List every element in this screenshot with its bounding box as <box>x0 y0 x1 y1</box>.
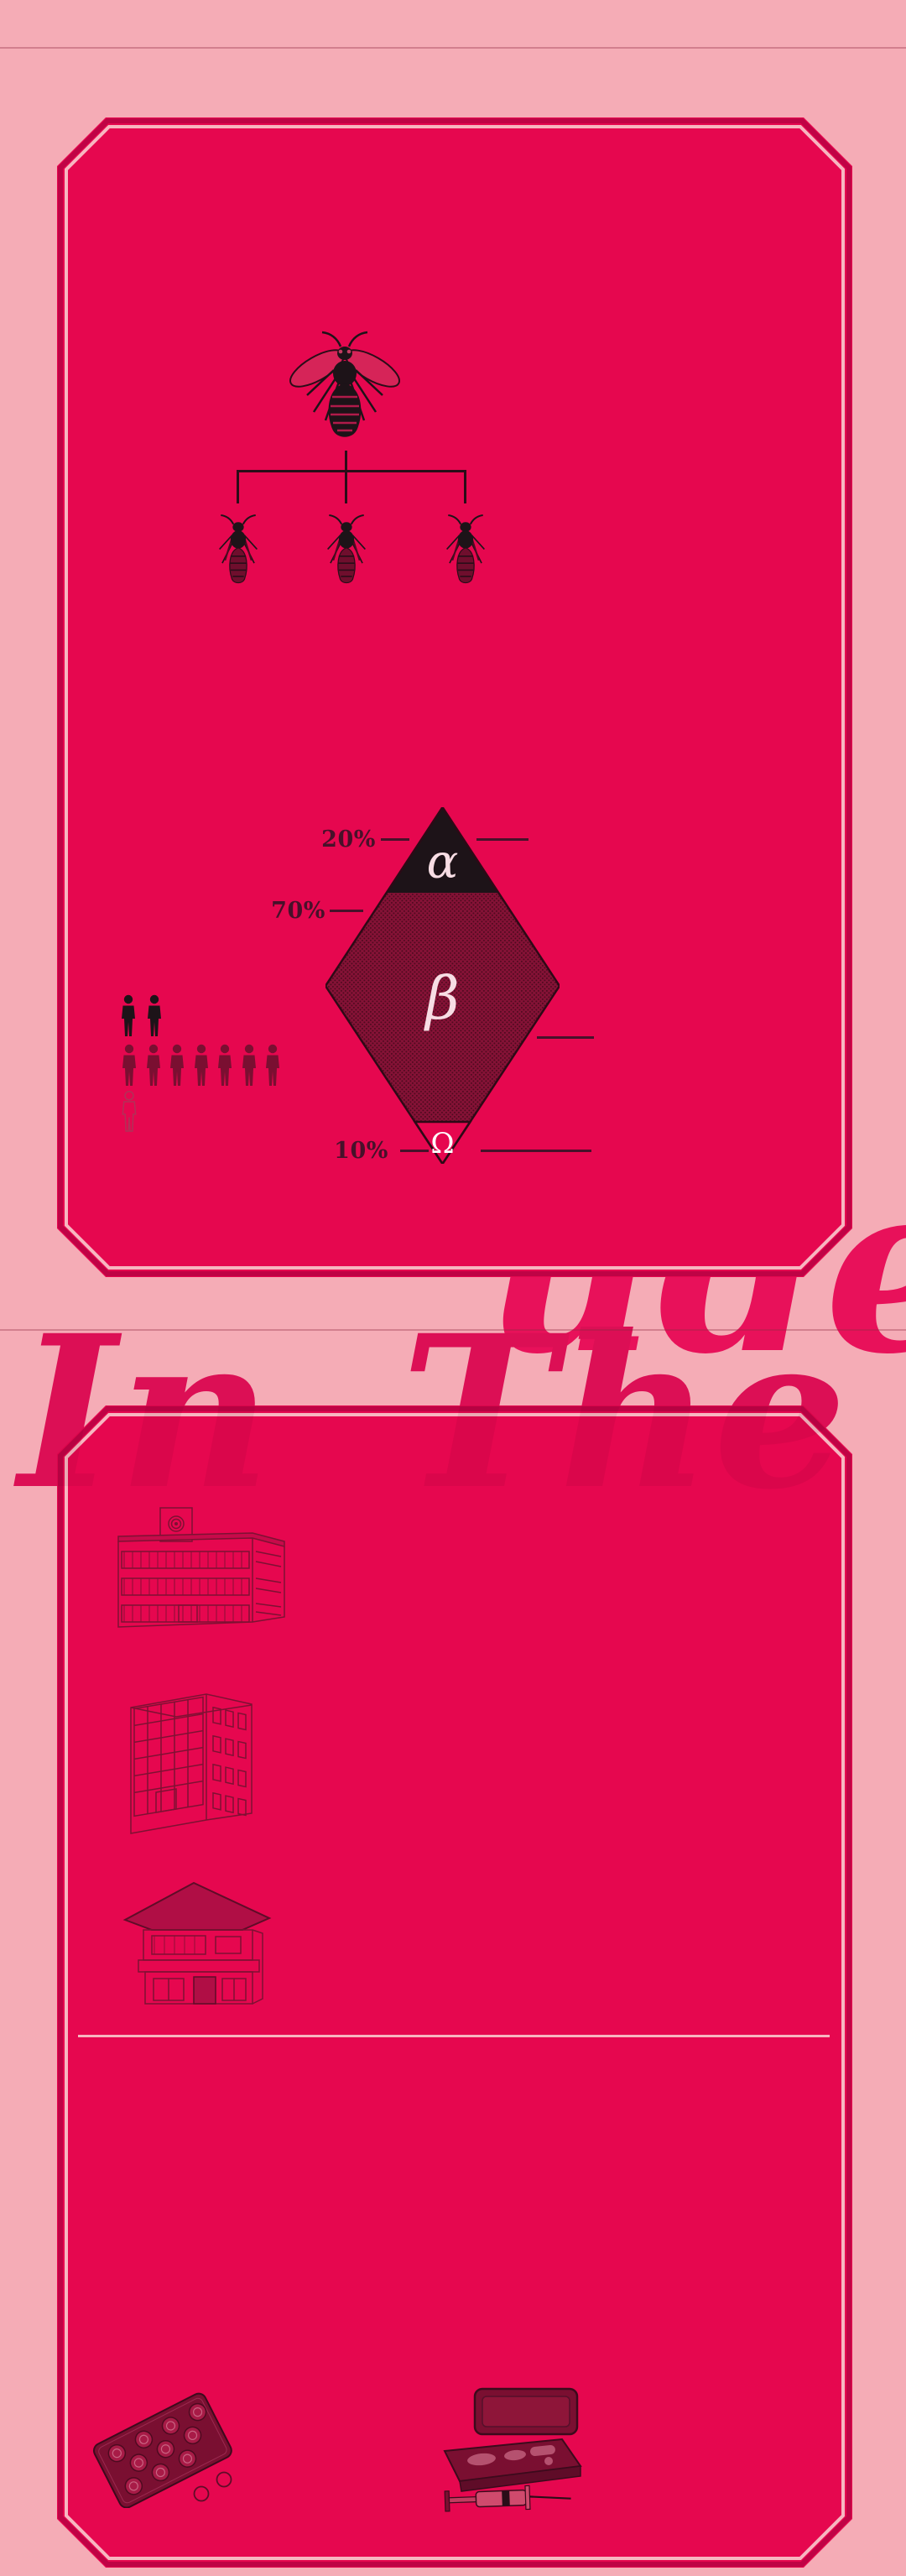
leader-line-omega-left <box>400 1150 429 1152</box>
leader-line-omega-right <box>481 1150 591 1152</box>
person-icon-maroon <box>263 1044 282 1087</box>
person-icon-outline <box>120 1091 138 1133</box>
leader-line-beta-left <box>330 910 363 912</box>
beta-label: β <box>423 964 459 1033</box>
leader-line-alpha-left <box>381 838 409 841</box>
page-fold-line-top <box>0 47 906 49</box>
infographic-spread: { "colors": { "background": "#f5acb6", "… <box>0 0 906 2576</box>
omega-label: Ω <box>430 1127 454 1160</box>
leader-line-beta-right <box>537 1036 594 1039</box>
page-fold-line-middle <box>0 1329 906 1331</box>
value-label-beta: 70% <box>263 898 325 925</box>
person-icon-black <box>145 993 164 1039</box>
person-icon-maroon <box>144 1044 163 1087</box>
wasp-icon <box>214 505 263 594</box>
queen-wasp-icon <box>282 330 408 449</box>
wasp-icon <box>322 505 371 594</box>
loose-pill-icon <box>217 2473 232 2487</box>
pill-blister-pack-icon <box>91 2392 240 2508</box>
section-divider <box>78 2035 830 2037</box>
tree-line-branch-1 <box>237 470 239 503</box>
person-icon-maroon <box>240 1044 258 1087</box>
syringe-case-icon <box>441 2387 586 2521</box>
diamond-distribution-chart: α β Ω <box>325 807 560 1164</box>
loose-pill-icon <box>195 2487 209 2501</box>
person-icon-maroon <box>216 1044 234 1087</box>
two-story-house-icon <box>120 1876 275 2011</box>
school-clock-tower-building-icon <box>112 1503 291 1634</box>
tree-line-branch-3 <box>464 470 466 503</box>
top-panel: α β Ω 20% 70% 10% <box>57 117 852 1277</box>
bottom-panel <box>57 1405 852 2568</box>
tree-line-branch-2 <box>345 470 347 503</box>
value-label-omega: 10% <box>326 1138 388 1165</box>
person-icon-maroon <box>192 1044 211 1087</box>
value-label-alpha: 20% <box>314 827 376 853</box>
tree-line-horizontal <box>237 470 466 472</box>
person-icon-maroon <box>168 1044 186 1087</box>
person-icon-maroon <box>120 1044 138 1087</box>
leader-line-alpha-right <box>476 838 528 841</box>
office-block-building-icon <box>124 1687 262 1839</box>
person-icon-black <box>119 993 138 1039</box>
wasp-icon <box>441 505 490 594</box>
alpha-label: α <box>427 835 459 889</box>
